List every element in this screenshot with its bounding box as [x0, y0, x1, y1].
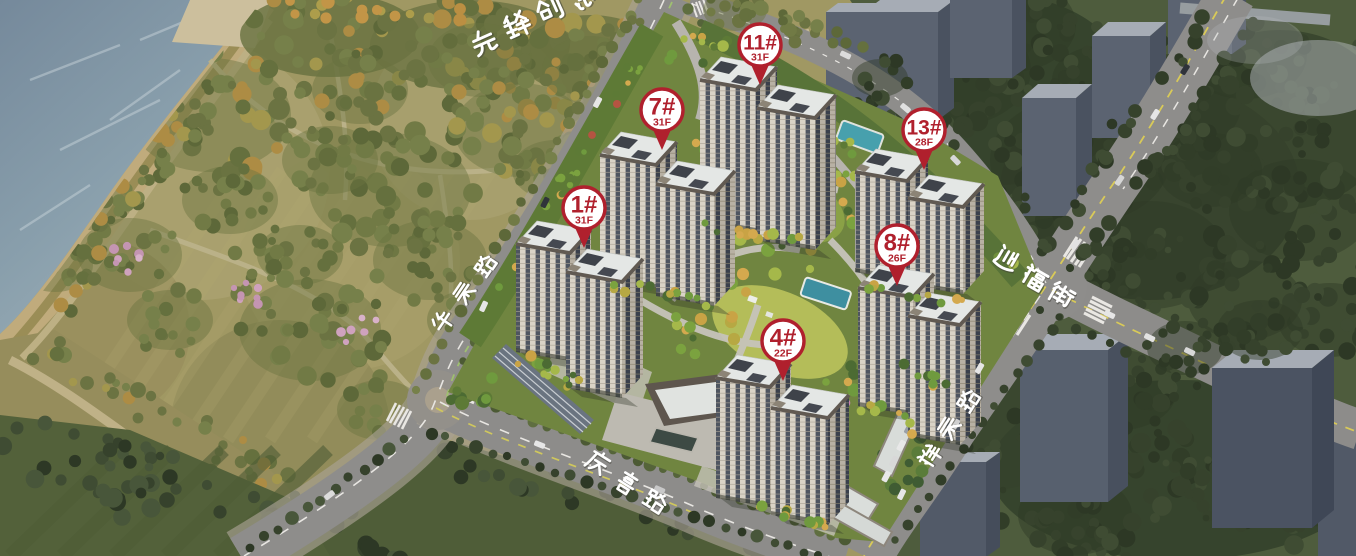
svg-text:26F: 26F — [888, 253, 907, 265]
svg-text:28F: 28F — [915, 137, 934, 149]
svg-text:31F: 31F — [751, 52, 770, 64]
svg-text:31F: 31F — [575, 215, 594, 227]
svg-text:31F: 31F — [653, 117, 672, 129]
svg-text:22F: 22F — [774, 348, 793, 360]
